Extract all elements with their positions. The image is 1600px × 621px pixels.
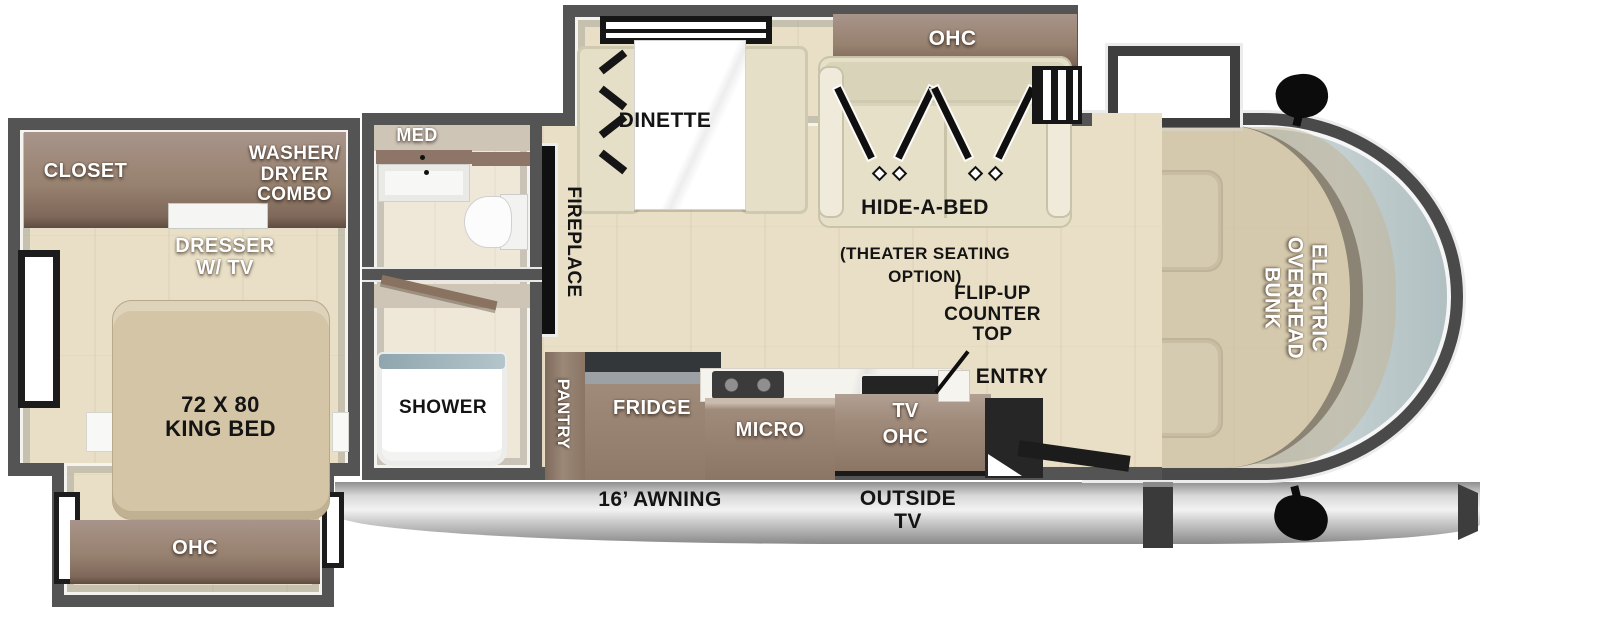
flip-up-counter-label: FLIP-UP COUNTER TOP bbox=[925, 284, 1060, 346]
hide-a-bed-subtitle: (THEATER SEATING OPTION) bbox=[840, 244, 1010, 286]
sofa-ohc-label: OHC bbox=[900, 28, 1005, 51]
awning-label: 16’ AWNING bbox=[545, 489, 775, 512]
hide-a-bed-label: HIDE-A-BED (THEATER SEATING OPTION) bbox=[815, 174, 1035, 287]
fireplace-label: FIREPLACE bbox=[565, 147, 583, 337]
closet-label: CLOSET bbox=[28, 161, 143, 183]
shower-glass-top bbox=[379, 354, 505, 369]
med-cabinet-label: MED bbox=[380, 126, 454, 145]
toilet-bowl-icon bbox=[464, 196, 512, 248]
outside-tv-label: OUTSIDE TV bbox=[838, 488, 978, 533]
exterior-entry-step bbox=[1143, 482, 1173, 548]
overhead-bunk-label: ELECTRIC OVERHEAD BUNK bbox=[1261, 211, 1331, 386]
washer-dryer-unit bbox=[168, 203, 268, 229]
washer-dryer-label: WASHER/ DRYER COMBO bbox=[232, 144, 357, 206]
floorplan-canvas: 16’ AWNING OUTSIDE TV ELECTRIC OVERHEAD … bbox=[0, 0, 1600, 621]
shower-label: SHOWER bbox=[387, 398, 499, 419]
vanity-knob bbox=[424, 170, 429, 175]
hide-a-bed-title: HIDE-A-BED bbox=[861, 196, 989, 219]
sofa-seat-seam bbox=[842, 100, 1050, 103]
tv-ohc-label: TV OHC bbox=[858, 398, 953, 450]
pantry-label: PANTRY bbox=[556, 349, 572, 479]
nightstand bbox=[332, 412, 349, 452]
bedroom-bottom-wall-left bbox=[8, 463, 56, 476]
fridge-label: FRIDGE bbox=[595, 398, 709, 420]
dinette-bench-right bbox=[740, 46, 808, 214]
dinette-window-mullion bbox=[606, 29, 766, 33]
bath-counter-strip bbox=[472, 152, 530, 166]
vanity-knob bbox=[420, 155, 425, 160]
dresser-tv-label: DRESSER W/ TV bbox=[150, 236, 300, 279]
nightstand bbox=[86, 412, 114, 452]
awning-end-cap bbox=[1458, 484, 1478, 540]
bed-ohc-label: OHC bbox=[150, 538, 240, 560]
bedroom-window-icon bbox=[18, 250, 60, 408]
sofa-corner-window-icon bbox=[1032, 66, 1082, 124]
king-bed-label: 72 X 80 KING BED bbox=[133, 393, 308, 441]
dinette-label: DINETTE bbox=[595, 110, 735, 133]
microwave-label: MICRO bbox=[708, 420, 832, 442]
entry-label: ENTRY bbox=[962, 366, 1062, 389]
stove-icon bbox=[712, 371, 784, 399]
